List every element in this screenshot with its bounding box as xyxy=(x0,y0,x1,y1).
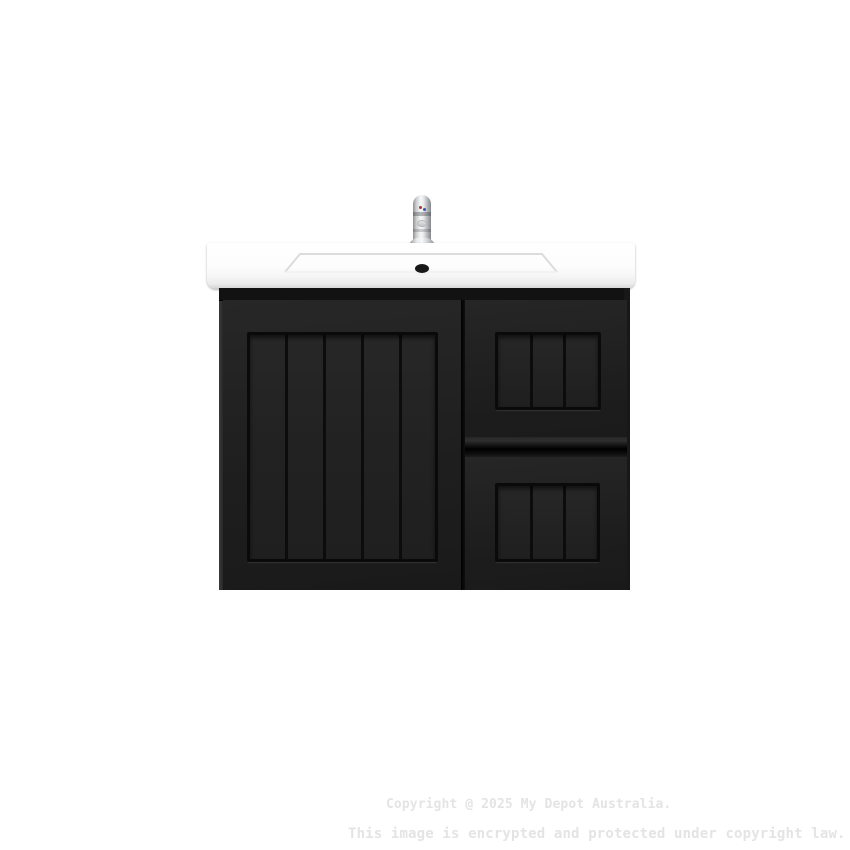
door-left xyxy=(223,300,461,590)
cabinet xyxy=(219,288,630,590)
basin-top xyxy=(207,243,635,289)
door-vgroove-panel xyxy=(247,332,438,562)
overflow-hole xyxy=(415,264,429,273)
faucet-handle-seam xyxy=(413,212,431,216)
watermark-line-2: This image is encrypted and protected un… xyxy=(348,826,846,842)
faucet-body-seam xyxy=(413,229,431,232)
product-photo: Copyright @ 2025 My Depot Australia. Thi… xyxy=(0,0,850,850)
drawer-top xyxy=(465,300,627,450)
drawer-bottom xyxy=(465,457,627,590)
basin-bowl-outline xyxy=(207,243,635,289)
cold-indicator-dot xyxy=(423,208,426,211)
drawer-divider-gap xyxy=(465,437,627,457)
faucet-logo-badge xyxy=(417,220,427,227)
watermark-line-1: Copyright @ 2025 My Depot Australia. xyxy=(386,797,671,812)
drawer-bottom-panel xyxy=(495,483,600,562)
faucet xyxy=(404,195,440,250)
hot-indicator-dot xyxy=(419,206,422,209)
drawer-top-panel xyxy=(495,332,601,410)
